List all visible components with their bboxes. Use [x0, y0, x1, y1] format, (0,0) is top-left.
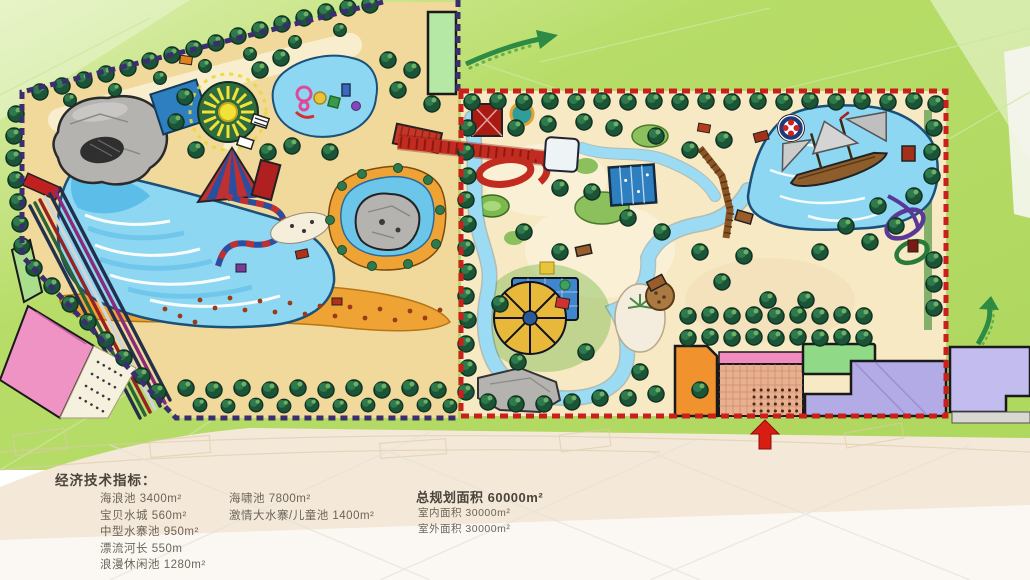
indicators-column-3: 室内面积 30000m² 室外面积 30000m²	[418, 506, 510, 537]
indicators-title: 经济技术指标：	[55, 469, 157, 489]
indicator-wave-pool: 海浪池 3400m²	[100, 491, 206, 508]
indicator-drift-river: 漂流河长 550m	[100, 541, 206, 558]
right-parcel	[398, 91, 946, 416]
indicator-tsunami-pool: 海啸池 7800m²	[229, 491, 374, 508]
indicator-outdoor-area: 室外面积 30000m²	[418, 522, 510, 538]
water-park-master-plan: 经济技术指标： 海浪池 3400m² 宝贝水城 560m² 中型水寨池 950m…	[0, 0, 1030, 580]
indicator-indoor-area: 室内面积 30000m²	[418, 506, 510, 522]
island-rock	[356, 193, 420, 249]
annex-base	[952, 412, 1030, 423]
splash-pool-white	[544, 137, 579, 172]
swimming-pool	[609, 164, 657, 205]
baby-water-city	[273, 56, 377, 137]
orange-building	[675, 346, 717, 416]
pink-strip	[719, 352, 803, 364]
light-green-building	[428, 12, 456, 94]
indicator-baby-water-city: 宝贝水城 560m²	[100, 508, 206, 525]
indicator-total-area: 总规划面积 60000m²	[416, 487, 543, 506]
indicator-leisure-pool: 浪漫休闲池 1280m²	[100, 557, 206, 574]
indicator-kids-pool: 激情大水寨/儿童池 1400m²	[229, 508, 374, 525]
indicators-column-2: 海啸池 7800m² 激情大水寨/儿童池 1400m²	[229, 491, 374, 524]
indicator-medium-fortress-pool: 中型水寨池 950m²	[100, 524, 206, 541]
indicators-column-1: 海浪池 3400m² 宝贝水城 560m² 中型水寨池 950m² 漂流河长 5…	[100, 491, 206, 574]
lifebuoy-pool	[778, 115, 805, 142]
